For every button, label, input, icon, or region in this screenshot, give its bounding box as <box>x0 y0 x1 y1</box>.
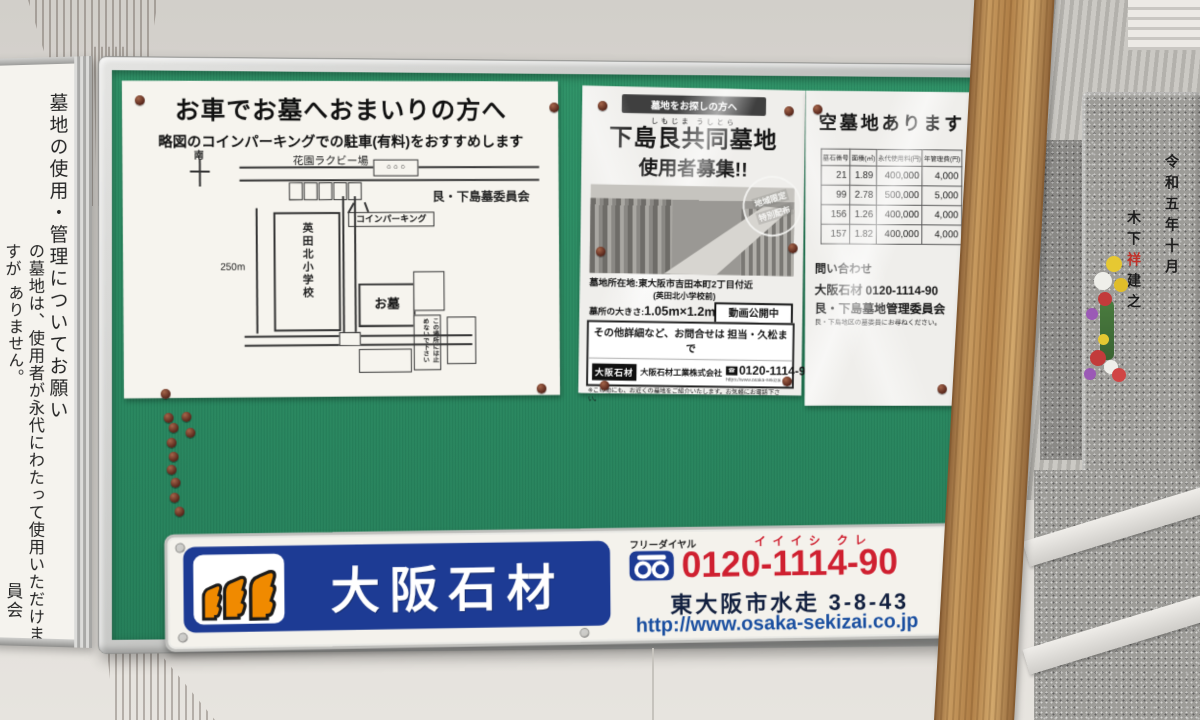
pushpin <box>596 247 606 257</box>
house-box <box>304 182 318 200</box>
purple-flower <box>1084 368 1096 380</box>
video-label: 動画公開中 <box>716 305 791 323</box>
pushpin <box>598 101 608 111</box>
screw <box>178 633 188 643</box>
table-row: 1571.82400,0004,000 <box>821 224 962 245</box>
pushpin <box>175 507 185 517</box>
pushpin <box>937 384 946 394</box>
vacancy-poster: 空墓地あります 墓石番号 面積(㎡) 永代使用料(円) 年管理費(円) 211.… <box>805 90 978 405</box>
parking-poster-title: お車でお墓へおまいりの方へ <box>122 91 558 127</box>
pushpin <box>182 412 192 422</box>
yellow-flower <box>1106 256 1122 272</box>
yellow-flower <box>1098 334 1109 345</box>
gravestone-pedestals <box>1034 470 1200 720</box>
pushpin <box>169 452 179 462</box>
freedial-mini-icon: ☎ <box>726 366 737 375</box>
pushpin <box>784 106 794 116</box>
coin-parking-label: コインパーキング <box>348 212 434 227</box>
left-sign-fragment: ありません。 <box>2 284 25 385</box>
sketch-map: 南 花園ラクビー場 ○ ○ ○ 艮・下島墓委員会 コインパーキング 250m <box>144 146 540 388</box>
contact-line: その他詳細など、お問合せは 担当・久松まで <box>588 322 792 361</box>
vacancy-title: 空墓地あります <box>806 108 978 136</box>
left-notice-sign: 墓地の使用・管理についてお願い の墓地は、使用者が永代にわたって使用いただけます… <box>0 56 92 648</box>
col-header: 面積(㎡) <box>850 149 877 166</box>
col-header: 年管理費(円) <box>923 150 962 167</box>
pushpin <box>167 465 177 475</box>
gravestone-red-character: 祥 <box>1126 252 1142 273</box>
pushpin <box>135 95 145 105</box>
parking-meter-box: ○ ○ ○ <box>373 159 418 176</box>
grave-box: お墓 <box>358 283 415 327</box>
gravestone-inscription-date: 令和五年十月 <box>1162 154 1182 280</box>
distance-label: 250m <box>220 262 245 273</box>
purple-flower <box>1086 308 1098 320</box>
inquiry-committee: 艮・下島墓地管理委員会 <box>815 298 977 317</box>
banner-phone: 0120-1114-90 <box>681 542 898 586</box>
pushpin <box>600 381 610 391</box>
compass-line <box>190 171 210 173</box>
pushpin <box>782 377 792 387</box>
distance-arrow <box>256 208 259 333</box>
pushpin <box>170 493 180 503</box>
pushpin <box>161 389 171 399</box>
committee-label: 艮・下島墓委員会 <box>432 186 530 205</box>
banner-url: http://www.osaka-sekizai.co.jp <box>636 609 919 637</box>
table-row: 211.89400,0004,000 <box>821 165 962 186</box>
block-box <box>447 316 477 364</box>
table-row: 1561.26400,0004,000 <box>821 205 962 226</box>
screw <box>175 543 185 553</box>
no-parking-text: めないで下さい <box>419 318 429 363</box>
bulletin-board: お車でお墓へおまいりの方へ 略図のコインパーキングでの駐車(有料)をおすすめしま… <box>98 56 1000 654</box>
sect-note: ※この他にも、お近くの墓地をご紹介いたします。お気軽にお電話下さい。 <box>588 387 792 406</box>
banner-logo-text: 大阪石材 <box>284 548 611 624</box>
road <box>240 179 540 182</box>
school-label: 英田北小学校 <box>299 222 315 300</box>
building-siding <box>1128 0 1200 50</box>
recruitment-poster: 墓地をお探しの方へ しもじま うしとら 下島艮共同墓地 使用者募集!! 地域限定… <box>578 85 805 395</box>
recruit-title: 下島艮共同墓地 <box>582 125 805 154</box>
red-flower <box>1098 292 1112 306</box>
pushpin <box>164 413 174 423</box>
inquiry-label: 問い合わせ <box>815 260 977 278</box>
footer-phone: ☎0120-1114-90 <box>726 363 812 378</box>
wall-seam <box>652 648 654 720</box>
pushpin <box>549 102 559 112</box>
yellow-flower <box>1114 278 1128 292</box>
recruit-banner: 墓地をお探しの方へ <box>622 94 766 116</box>
school-block: 英田北小学校 <box>273 212 341 332</box>
parking-info-poster: お車でお墓へおまいりの方へ 略図のコインパーキングでの駐車(有料)をおすすめしま… <box>122 81 560 399</box>
pedestal-step <box>1023 591 1200 674</box>
house-box <box>333 182 347 200</box>
col-header: 墓石番号 <box>821 149 850 166</box>
banner-contact: フリーダイヤル イイイシ クレ 0120-1114-90 東大阪市水走 3-8-… <box>627 530 977 637</box>
logo-plate: 大阪石材 <box>183 541 611 633</box>
gravestone-main: 令和五年十月 木下祥建之 <box>1082 92 1200 492</box>
vacancy-contact: 問い合わせ 大阪石材 0120-1114-90 艮・下島墓地管理委員会 艮・下島… <box>815 260 978 328</box>
red-flower <box>1112 368 1126 382</box>
house-box <box>289 182 303 200</box>
pushpin <box>537 384 547 394</box>
junction-box <box>339 332 361 346</box>
osaka-sekizai-banner: 大阪石材 フリーダイヤル イイイシ クレ 0120-1114-90 東大阪市水走… <box>164 523 990 652</box>
pushpin <box>171 478 181 488</box>
col-header: 永代使用料(円) <box>877 149 923 166</box>
moai-logo-icon <box>193 554 285 625</box>
pushpin <box>167 438 177 448</box>
pushpin <box>788 243 798 253</box>
inquiry-note: 艮・下島地区の墓委員にお尋ねください。 <box>815 318 977 329</box>
left-sign-heading: 墓地の使用・管理についてお願い <box>44 93 71 422</box>
cemetery-photo: 地域限定 特別配布 <box>590 184 795 276</box>
left-sign-signature-fragment: 員会 <box>1 582 25 620</box>
company-name: 大阪石材工業株式会社 <box>640 366 722 379</box>
house-box <box>318 182 332 200</box>
pushpin <box>169 423 179 433</box>
sign-frame <box>74 56 92 648</box>
inquiry-phone: 大阪石材 0120-1114-90 <box>815 279 977 298</box>
cemetery-bulletin-board-photo: 令和五年十月 木下祥建之 墓地の使用・管理についてお願い の墓地は、使用者が永代… <box>0 0 1200 720</box>
pedestal-step <box>1023 483 1200 566</box>
freedial-icon <box>629 551 674 581</box>
recruit-footer: その他詳細など、お問合せは 担当・久松まで 大阪石材 大阪石材工業株式会社 ☎0… <box>586 320 795 389</box>
block-box <box>359 349 412 373</box>
white-flower <box>1094 272 1112 290</box>
pushpin <box>813 105 823 115</box>
pushpin <box>185 428 195 438</box>
vacancy-table: 墓石番号 面積(㎡) 永代使用料(円) 年管理費(円) 211.89400,00… <box>821 148 963 245</box>
screw <box>580 628 590 638</box>
no-parking-text: この場所には止 <box>429 318 439 363</box>
road <box>342 196 345 335</box>
photo-gravestones <box>590 198 673 275</box>
gravestone-inscription-name: 木下祥建之 <box>1124 210 1144 315</box>
table-row: 992.78500,0005,000 <box>821 185 962 206</box>
osaka-sekizai-logo: 大阪石材 <box>592 363 637 380</box>
block-box <box>413 271 445 311</box>
